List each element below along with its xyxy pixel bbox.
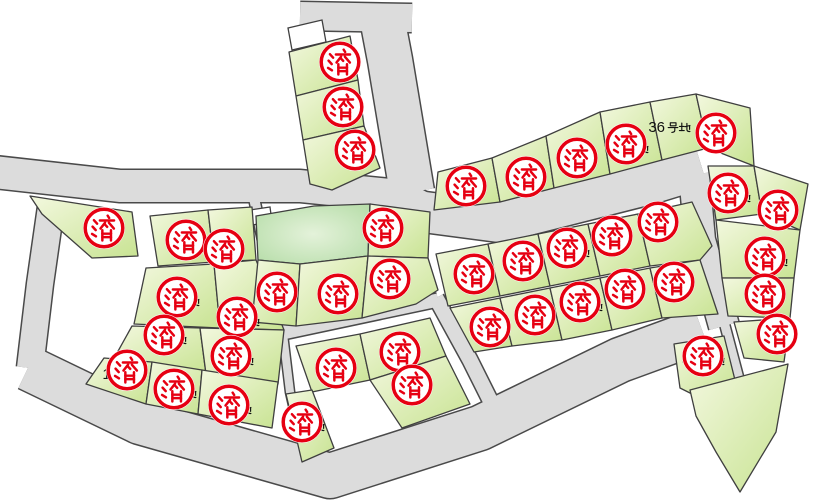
sold-stamp bbox=[143, 314, 185, 356]
sold-stamp bbox=[514, 294, 556, 336]
sold-stamp bbox=[153, 368, 195, 410]
sold-stamp bbox=[707, 172, 749, 214]
sold-stamp bbox=[317, 273, 359, 315]
park-area bbox=[256, 204, 370, 264]
sold-stamp bbox=[322, 86, 364, 128]
sold-stamp bbox=[757, 189, 799, 231]
road bbox=[30, 200, 52, 368]
sold-stamp bbox=[83, 207, 125, 249]
sold-stamp bbox=[315, 347, 357, 389]
sold-stamp bbox=[106, 349, 148, 391]
sold-stamp bbox=[334, 129, 376, 171]
sold-stamp bbox=[604, 268, 646, 310]
sold-stamp bbox=[210, 335, 252, 377]
subdivision-map-svg: 363526213740431617141510111213 bbox=[0, 0, 823, 500]
sold-stamp bbox=[682, 335, 724, 377]
sold-stamp bbox=[281, 401, 323, 443]
sold-stamp bbox=[505, 156, 547, 198]
sold-stamp bbox=[391, 364, 433, 406]
sold-stamp bbox=[653, 261, 695, 303]
sold-stamp bbox=[559, 281, 601, 323]
sold-stamp bbox=[695, 112, 737, 154]
lot-map: 363526213740431617141510111213 bbox=[0, 0, 823, 500]
sold-stamp bbox=[165, 219, 207, 261]
sold-stamp bbox=[469, 306, 511, 348]
sold-stamp bbox=[744, 236, 786, 278]
sold-stamp bbox=[453, 253, 495, 295]
sold-stamp bbox=[591, 215, 633, 257]
sold-stamp bbox=[546, 227, 588, 269]
sold-stamp bbox=[445, 165, 487, 207]
sold-stamp bbox=[502, 240, 544, 282]
sold-stamp bbox=[605, 123, 647, 165]
sold-stamp bbox=[319, 41, 361, 83]
sold-stamp bbox=[556, 137, 598, 179]
sold-stamp bbox=[756, 313, 798, 355]
sold-stamp bbox=[362, 207, 404, 249]
sold-stamp bbox=[369, 258, 411, 300]
lot-number-text: 36 bbox=[648, 119, 665, 136]
sold-stamp bbox=[208, 384, 250, 426]
sold-stamp bbox=[256, 271, 298, 313]
road bbox=[382, 18, 412, 192]
sold-stamp bbox=[744, 273, 786, 315]
sold-stamp bbox=[637, 201, 679, 243]
sold-stamp bbox=[203, 228, 245, 270]
sold-stamp bbox=[156, 276, 198, 318]
sold-stamp bbox=[216, 296, 258, 338]
